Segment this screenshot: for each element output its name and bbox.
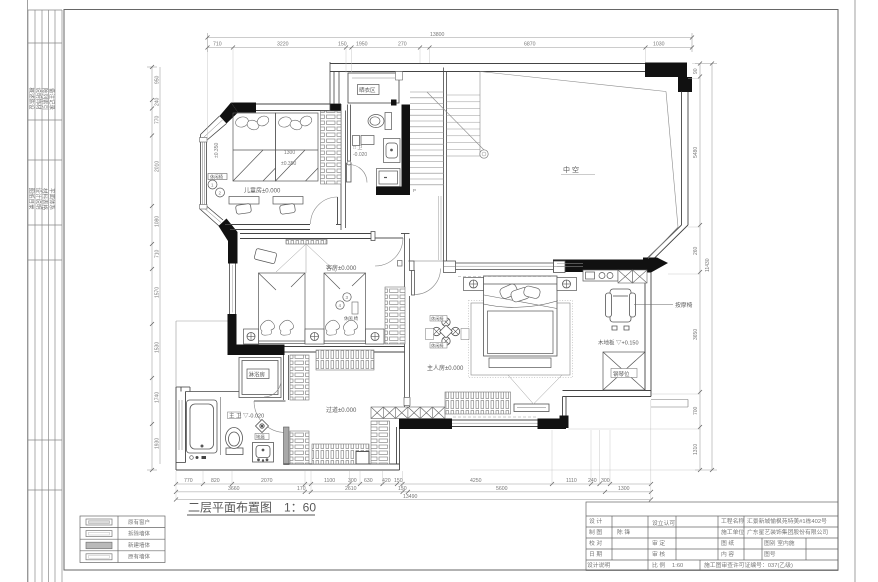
svg-text:1930: 1930 [155, 438, 161, 449]
svg-text:150: 150 [394, 478, 403, 484]
svg-text:过道±0.000: 过道±0.000 [326, 406, 357, 414]
svg-text:新建墙体: 新建墙体 [128, 541, 151, 549]
svg-text:950: 950 [155, 75, 161, 84]
svg-text:3220: 3220 [277, 42, 289, 48]
svg-text:420: 420 [382, 478, 391, 484]
svg-text:审 核: 审 核 [652, 550, 665, 558]
svg-text:比 例: 比 例 [652, 561, 665, 569]
svg-text:施工单位: 施工单位 [721, 528, 744, 536]
svg-text:陈列索引: 陈列索引 [41, 88, 49, 110]
svg-text:5480: 5480 [693, 147, 699, 158]
svg-text:3660: 3660 [228, 486, 240, 492]
svg-text:休闲椅: 休闲椅 [210, 173, 224, 180]
svg-text:原有墙体: 原有墙体 [128, 553, 151, 561]
svg-text:客房±0.000: 客房±0.000 [326, 264, 357, 272]
svg-text:1950: 1950 [356, 42, 368, 48]
svg-text:日 期: 日 期 [589, 551, 602, 558]
svg-text:1310: 1310 [693, 444, 699, 455]
svg-text:710: 710 [213, 42, 222, 48]
svg-text:4250: 4250 [470, 478, 482, 484]
svg-text:1100: 1100 [324, 478, 335, 484]
svg-text:2610: 2610 [345, 486, 357, 492]
svg-text:820: 820 [211, 478, 220, 484]
svg-text:备注记录: 备注记录 [48, 88, 56, 111]
svg-text:设 计: 设 计 [589, 517, 602, 525]
svg-text:图别 室内施: 图别 室内施 [764, 539, 795, 547]
svg-text:13490: 13490 [403, 494, 418, 500]
svg-text:1:60: 1:60 [672, 563, 683, 569]
svg-text:儿童房±0.000: 儿童房±0.000 [244, 187, 281, 195]
svg-text:770: 770 [184, 478, 193, 484]
svg-text:休闲椅: 休闲椅 [431, 342, 444, 349]
svg-text:240: 240 [588, 478, 597, 484]
svg-text:按摩椅: 按摩椅 [675, 301, 693, 309]
svg-text:-0.020: -0.020 [353, 152, 367, 158]
svg-text:270: 270 [398, 42, 407, 48]
svg-text:1530: 1530 [155, 342, 161, 353]
svg-text:设计说明: 设计说明 [587, 561, 610, 569]
svg-text:170: 170 [297, 486, 306, 492]
svg-text:地漏: 地漏 [256, 433, 265, 440]
svg-text:90: 90 [693, 68, 699, 74]
svg-text:P: P [413, 188, 416, 193]
svg-text:2070: 2070 [261, 478, 273, 484]
svg-text:平面体系: 平面体系 [48, 188, 56, 211]
svg-text:校 对: 校 对 [589, 539, 602, 547]
svg-text:制 图: 制 图 [589, 528, 602, 536]
svg-text:300: 300 [601, 478, 610, 484]
svg-text:木地板 ▽+0.150: 木地板 ▽+0.150 [598, 339, 639, 347]
svg-text:1740: 1740 [155, 392, 161, 403]
svg-text:拆除墙体: 拆除墙体 [128, 530, 151, 538]
svg-text:3650: 3650 [693, 329, 699, 340]
svg-text:工程名称: 工程名称 [721, 517, 744, 525]
svg-text:5600: 5600 [496, 486, 508, 492]
svg-text:700: 700 [693, 406, 699, 415]
svg-text:审 定: 审 定 [652, 539, 665, 547]
svg-text:材料表格: 材料表格 [41, 188, 49, 211]
svg-text:260: 260 [693, 246, 699, 255]
svg-text:710: 710 [155, 249, 161, 258]
svg-text:2010: 2010 [155, 161, 161, 172]
svg-text:1030: 1030 [653, 42, 665, 48]
svg-text:11430: 11430 [705, 258, 711, 272]
svg-text:休闲椅: 休闲椅 [431, 315, 444, 322]
svg-text:240: 240 [155, 97, 161, 106]
svg-text:概述陈设: 概述陈设 [28, 88, 36, 111]
svg-text:1570: 1570 [155, 287, 161, 298]
svg-text:休闲 椅: 休闲 椅 [344, 315, 359, 322]
svg-text:1080: 1080 [155, 216, 161, 227]
svg-text:13800: 13800 [430, 32, 445, 38]
svg-text:陈 锋: 陈 锋 [617, 528, 630, 536]
svg-text:内 容: 内 容 [721, 550, 734, 558]
svg-text:主人房±0.000: 主人房±0.000 [427, 364, 464, 372]
svg-text:晒衣区: 晒衣区 [359, 86, 376, 94]
svg-text:1300: 1300 [284, 150, 295, 156]
svg-text:钢琴位: 钢琴位 [613, 370, 630, 378]
svg-text:1110: 1110 [566, 478, 577, 484]
svg-text:□ 卫: □ 卫 [353, 145, 362, 151]
svg-text:±0.350: ±0.350 [281, 161, 296, 167]
svg-text:图号: 图号 [764, 550, 776, 558]
svg-text:630: 630 [364, 478, 373, 484]
svg-text:150: 150 [338, 42, 347, 48]
svg-text:设立认可: 设立认可 [652, 519, 675, 527]
svg-text:二层平面布置图 1：60: 二层平面布置图 1：60 [188, 501, 316, 515]
svg-text:施工图审查许可证编号：037(乙级): 施工图审查许可证编号：037(乙级) [704, 561, 793, 569]
svg-text:1300: 1300 [618, 486, 630, 492]
svg-text:广东星艺装饰集团股份有限公司: 广东星艺装饰集团股份有限公司 [747, 528, 828, 536]
svg-text:中 空: 中 空 [563, 165, 579, 174]
svg-text:770: 770 [155, 115, 161, 124]
svg-text:原有窗户: 原有窗户 [128, 518, 150, 526]
svg-text:6870: 6870 [524, 42, 536, 48]
svg-text:淋浴房: 淋浴房 [249, 371, 266, 379]
svg-text:图 纸: 图 纸 [721, 539, 734, 547]
svg-text:汇景新城愉枫苑特美#1栋402号: 汇景新城愉枫苑特美#1栋402号 [747, 517, 827, 525]
svg-text:±0.350: ±0.350 [214, 143, 220, 158]
svg-text:图纸目录: 图纸目录 [28, 188, 36, 211]
